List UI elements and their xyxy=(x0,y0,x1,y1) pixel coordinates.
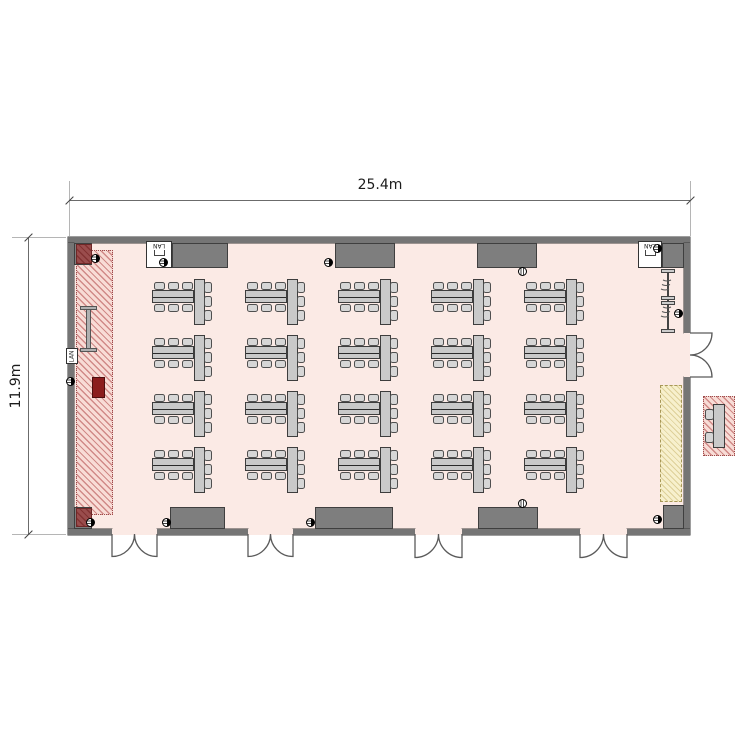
wall-right-lower xyxy=(684,377,690,529)
chair xyxy=(168,338,179,346)
height-dimension-label: 11.9m xyxy=(8,356,24,416)
chair xyxy=(182,394,193,402)
chair xyxy=(154,416,165,424)
chair xyxy=(154,338,165,346)
chair xyxy=(461,416,472,424)
chair xyxy=(483,352,491,363)
chair xyxy=(297,422,305,433)
chair xyxy=(275,416,286,424)
wall-bottom-seg xyxy=(157,529,248,535)
floor-plan-canvas: 25.4m 11.9m LAN LAN xyxy=(0,0,750,750)
chair xyxy=(340,282,351,290)
chair xyxy=(261,304,272,312)
table-group xyxy=(245,335,306,381)
chair xyxy=(576,352,584,363)
chair xyxy=(154,472,165,480)
chair xyxy=(275,304,286,312)
extension-line xyxy=(12,237,66,238)
wall-bottom-seg xyxy=(462,529,580,535)
chair xyxy=(204,394,212,405)
wall-block xyxy=(477,243,537,268)
annex-chair xyxy=(705,409,714,420)
screen-symbol-bar xyxy=(86,309,91,349)
chair xyxy=(483,478,491,489)
chair xyxy=(554,338,565,346)
chair xyxy=(340,338,351,346)
power-outlet-icon xyxy=(653,515,662,524)
chair xyxy=(390,394,398,405)
table-group xyxy=(152,279,213,325)
chair xyxy=(526,338,537,346)
long-table xyxy=(245,346,287,359)
chair xyxy=(483,296,491,307)
chair xyxy=(447,304,458,312)
chair xyxy=(247,282,258,290)
chair xyxy=(540,338,551,346)
power-outlet-icon xyxy=(306,518,315,527)
wall-right-upper xyxy=(684,243,690,333)
chair xyxy=(433,450,444,458)
chair xyxy=(275,360,286,368)
chair xyxy=(168,360,179,368)
chair xyxy=(540,304,551,312)
chair xyxy=(447,394,458,402)
chair xyxy=(368,360,379,368)
chair xyxy=(297,282,305,293)
long-table xyxy=(524,290,566,303)
chair xyxy=(554,416,565,424)
chair xyxy=(526,416,537,424)
chair xyxy=(526,304,537,312)
chair xyxy=(576,366,584,377)
chair xyxy=(483,450,491,461)
width-dimension-line xyxy=(69,200,690,201)
chair xyxy=(447,338,458,346)
long-table xyxy=(524,458,566,471)
table-group xyxy=(152,391,213,437)
lan-label: LAN xyxy=(69,350,76,362)
chair xyxy=(368,450,379,458)
chair xyxy=(154,450,165,458)
chair xyxy=(297,408,305,419)
chair xyxy=(204,408,212,419)
chair xyxy=(204,450,212,461)
chair xyxy=(204,338,212,349)
table-group xyxy=(245,279,306,325)
chair xyxy=(297,478,305,489)
wall-left xyxy=(68,243,74,529)
chair xyxy=(204,366,212,377)
power-outlet-icon xyxy=(653,244,662,253)
floor-outlet-icon xyxy=(518,499,527,508)
chair xyxy=(354,450,365,458)
table-group xyxy=(431,447,492,493)
long-table xyxy=(152,290,194,303)
door-opening-right xyxy=(684,333,690,377)
chair xyxy=(433,304,444,312)
chair xyxy=(526,360,537,368)
chair xyxy=(340,360,351,368)
chair xyxy=(483,366,491,377)
wall-block xyxy=(662,243,684,268)
chair xyxy=(433,472,444,480)
chair xyxy=(261,394,272,402)
chair xyxy=(354,472,365,480)
wall-block xyxy=(315,507,393,529)
chair xyxy=(247,450,258,458)
chair xyxy=(261,416,272,424)
chair xyxy=(390,352,398,363)
screen-symbol-bottom-cap xyxy=(80,348,97,352)
chair xyxy=(433,416,444,424)
long-table xyxy=(245,402,287,415)
chair xyxy=(433,360,444,368)
long-table xyxy=(431,458,473,471)
chair xyxy=(461,450,472,458)
chair xyxy=(182,450,193,458)
power-outlet-icon xyxy=(86,518,95,527)
stage-corner-block xyxy=(76,244,92,264)
chair xyxy=(275,282,286,290)
wall-block xyxy=(663,505,684,529)
lan-jack-icon xyxy=(154,250,165,256)
extension-line xyxy=(12,534,66,535)
lan-port-box: LAN xyxy=(66,348,78,364)
chair xyxy=(526,450,537,458)
table-group xyxy=(245,391,306,437)
chair xyxy=(433,338,444,346)
table-group xyxy=(245,447,306,493)
chair xyxy=(461,304,472,312)
long-table xyxy=(431,290,473,303)
chair xyxy=(576,422,584,433)
table-group xyxy=(338,335,399,381)
table-group xyxy=(152,335,213,381)
chair xyxy=(483,338,491,349)
chair xyxy=(182,416,193,424)
chair xyxy=(576,296,584,307)
long-table xyxy=(152,402,194,415)
chair xyxy=(554,450,565,458)
door-opening-bottom xyxy=(415,529,462,535)
extension-line xyxy=(69,181,70,236)
chair xyxy=(390,478,398,489)
power-outlet-icon xyxy=(91,254,100,263)
table-group xyxy=(338,391,399,437)
wall-bottom-seg xyxy=(68,529,112,535)
partition-bar xyxy=(661,296,675,300)
chair xyxy=(261,282,272,290)
table-group xyxy=(431,279,492,325)
chair xyxy=(297,338,305,349)
chair xyxy=(275,394,286,402)
long-table xyxy=(524,402,566,415)
chair xyxy=(168,450,179,458)
wall-bottom-seg xyxy=(293,529,415,535)
chair xyxy=(390,422,398,433)
height-dimension-line xyxy=(28,237,29,535)
long-table xyxy=(152,346,194,359)
chair xyxy=(447,450,458,458)
power-outlet-icon xyxy=(162,518,171,527)
chair xyxy=(576,478,584,489)
chair xyxy=(297,310,305,321)
chair xyxy=(247,416,258,424)
chair xyxy=(168,472,179,480)
chair xyxy=(390,282,398,293)
long-table xyxy=(152,458,194,471)
partition-bar xyxy=(661,301,675,305)
chair xyxy=(204,310,212,321)
chair xyxy=(390,450,398,461)
chair xyxy=(154,360,165,368)
chair xyxy=(182,304,193,312)
table-group xyxy=(524,391,585,437)
door-opening-bottom xyxy=(580,529,627,535)
chair xyxy=(554,360,565,368)
chair xyxy=(261,360,272,368)
chair xyxy=(368,338,379,346)
chair xyxy=(354,282,365,290)
chair xyxy=(576,408,584,419)
chair xyxy=(483,464,491,475)
table-group xyxy=(431,391,492,437)
chair xyxy=(261,450,272,458)
chair xyxy=(576,464,584,475)
table-group xyxy=(338,279,399,325)
table-group xyxy=(524,447,585,493)
chair xyxy=(247,472,258,480)
extension-line xyxy=(690,181,691,236)
wall-block xyxy=(478,507,538,529)
chair xyxy=(390,366,398,377)
chair xyxy=(354,304,365,312)
chair xyxy=(354,394,365,402)
chair xyxy=(461,394,472,402)
annex-table xyxy=(713,404,725,448)
chair xyxy=(340,416,351,424)
power-outlet-icon xyxy=(324,258,333,267)
chair xyxy=(554,394,565,402)
chair xyxy=(483,394,491,405)
chair xyxy=(182,360,193,368)
long-table xyxy=(338,458,380,471)
lan-label: LAN xyxy=(153,242,165,249)
width-dimension-label: 25.4m xyxy=(330,177,430,193)
chair xyxy=(447,416,458,424)
chair xyxy=(554,304,565,312)
table-group xyxy=(152,447,213,493)
chair xyxy=(247,360,258,368)
chair xyxy=(204,296,212,307)
chair xyxy=(576,394,584,405)
chair xyxy=(297,366,305,377)
chair xyxy=(540,360,551,368)
chair xyxy=(247,338,258,346)
chair xyxy=(526,394,537,402)
chair xyxy=(297,394,305,405)
wall-block xyxy=(170,507,225,529)
chair xyxy=(526,472,537,480)
chair xyxy=(540,472,551,480)
annex-chair xyxy=(705,432,714,443)
chair xyxy=(204,282,212,293)
chair xyxy=(275,472,286,480)
chair xyxy=(447,282,458,290)
long-table xyxy=(338,346,380,359)
door-opening-bottom xyxy=(112,529,157,535)
table-group xyxy=(338,447,399,493)
chair xyxy=(526,282,537,290)
chair xyxy=(275,338,286,346)
chair xyxy=(340,472,351,480)
partition-bar xyxy=(661,329,675,333)
power-outlet-icon xyxy=(674,309,683,318)
chair xyxy=(354,416,365,424)
long-table xyxy=(245,458,287,471)
long-table xyxy=(338,290,380,303)
chair xyxy=(447,360,458,368)
chair xyxy=(390,338,398,349)
table-group xyxy=(524,279,585,325)
chair xyxy=(461,472,472,480)
chair xyxy=(168,394,179,402)
chair xyxy=(261,338,272,346)
chair xyxy=(204,352,212,363)
long-table xyxy=(338,402,380,415)
table-group xyxy=(524,335,585,381)
chair xyxy=(540,282,551,290)
chair xyxy=(297,296,305,307)
power-outlet-icon xyxy=(66,377,75,386)
chair xyxy=(154,304,165,312)
chair xyxy=(340,450,351,458)
chair xyxy=(461,282,472,290)
chair xyxy=(354,338,365,346)
partition-bar xyxy=(661,269,675,273)
chair xyxy=(433,282,444,290)
chair xyxy=(182,282,193,290)
chair xyxy=(390,296,398,307)
chair xyxy=(576,282,584,293)
chair xyxy=(297,352,305,363)
chair xyxy=(483,422,491,433)
chair xyxy=(368,304,379,312)
chair xyxy=(390,408,398,419)
floor-outlet-icon xyxy=(518,267,527,276)
chair xyxy=(483,408,491,419)
chair xyxy=(204,478,212,489)
chair xyxy=(483,282,491,293)
long-table xyxy=(524,346,566,359)
chair xyxy=(390,310,398,321)
chair xyxy=(297,464,305,475)
podium xyxy=(92,377,105,398)
chair xyxy=(247,304,258,312)
chair xyxy=(461,360,472,368)
chair xyxy=(340,394,351,402)
wall-block xyxy=(335,243,395,268)
long-table xyxy=(431,346,473,359)
chair xyxy=(540,450,551,458)
chair xyxy=(168,304,179,312)
chair xyxy=(204,464,212,475)
chair xyxy=(368,416,379,424)
chair xyxy=(368,282,379,290)
chair xyxy=(182,472,193,480)
chair xyxy=(368,394,379,402)
chair xyxy=(554,472,565,480)
chair xyxy=(540,394,551,402)
chair xyxy=(340,304,351,312)
chair xyxy=(447,472,458,480)
wall-bottom-seg xyxy=(627,529,690,535)
chair xyxy=(540,416,551,424)
chair xyxy=(390,464,398,475)
chair xyxy=(354,360,365,368)
chair xyxy=(204,422,212,433)
chair xyxy=(483,310,491,321)
door-opening-bottom xyxy=(248,529,293,535)
chair xyxy=(461,338,472,346)
chair xyxy=(297,450,305,461)
chair xyxy=(576,450,584,461)
chair xyxy=(154,282,165,290)
chair xyxy=(275,450,286,458)
chair xyxy=(154,394,165,402)
storage-zone xyxy=(660,385,682,502)
chair xyxy=(168,282,179,290)
chair xyxy=(368,472,379,480)
chair xyxy=(554,282,565,290)
chair xyxy=(261,472,272,480)
chair xyxy=(182,338,193,346)
wall-block xyxy=(172,243,228,268)
power-outlet-icon xyxy=(159,258,168,267)
table-group xyxy=(431,335,492,381)
long-table xyxy=(431,402,473,415)
chair xyxy=(168,416,179,424)
chair xyxy=(433,394,444,402)
chair xyxy=(576,338,584,349)
chair xyxy=(247,394,258,402)
long-table xyxy=(245,290,287,303)
chair xyxy=(576,310,584,321)
